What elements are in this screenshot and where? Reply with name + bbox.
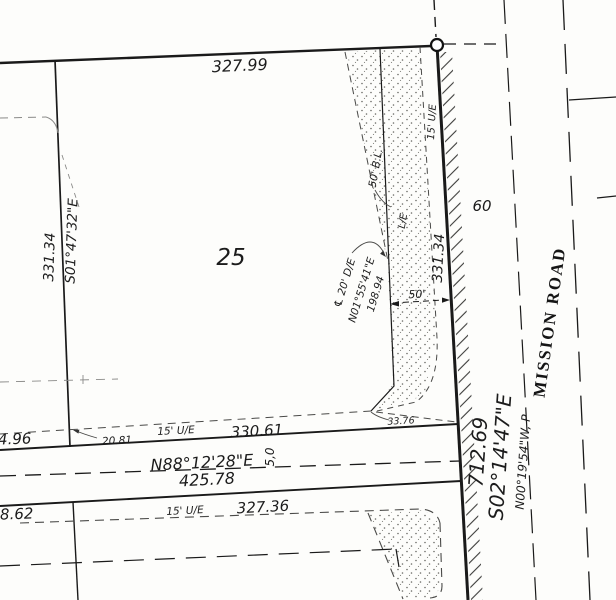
- corner-monument-marker: [431, 39, 443, 51]
- dim-50-label: 50': [408, 288, 425, 302]
- plat-sheet: 327.99 25 331.34 S01°47'32"E 331.34 15' …: [0, 0, 616, 600]
- road-width-label: 60: [472, 197, 491, 215]
- drainage-label-leader: [352, 242, 384, 253]
- boundary-bearing-label: S02°14'47"E: [484, 393, 517, 521]
- lower-lot-division-line: [73, 502, 78, 600]
- offset-leader-arrow: [73, 430, 79, 434]
- boundary-hatch-strip: [440, 52, 483, 600]
- street-half-width-label: 5,0: [263, 447, 277, 466]
- west-corner-arc: [46, 117, 58, 133]
- drainage-easement-stipple-area: [347, 48, 436, 410]
- drainage-leader-arrow: [380, 250, 386, 257]
- offset-dim-label: 20.81: [102, 434, 133, 448]
- utility-easement-top-label: 15' U/E: [426, 103, 439, 140]
- southeast-easement-stipple-area: [369, 510, 442, 598]
- dim-50-arrow-right: [442, 298, 450, 303]
- east-property-tick-2: [597, 196, 616, 198]
- lot-number-label: 25: [216, 245, 245, 271]
- lower-dashed-line: [0, 549, 396, 566]
- wedge-dim-label: 33.76: [387, 415, 415, 427]
- boundary-extension-dashed: [434, 0, 436, 37]
- south-remainder-label: 8.62: [0, 504, 34, 523]
- utility-easement-south-label: 15' U/E: [166, 504, 204, 518]
- lot-west-distance-label: 331.34: [41, 232, 59, 282]
- lot-east-distance-label: 331.34: [430, 233, 449, 283]
- lot-south-distance-label: 330.61: [230, 421, 283, 442]
- west-adjacent-dashed-line: [0, 117, 46, 118]
- lot-west-bearing-label: S01°47'32"E: [63, 198, 82, 284]
- road-east-line: [563, 0, 590, 600]
- road-name-label: MISSION ROAD: [530, 245, 570, 398]
- east-property-tick-1: [569, 97, 616, 100]
- street-distance-label: 425.78: [179, 469, 236, 491]
- utility-easement-street-label: 15' U/E: [157, 424, 195, 438]
- lot-north-distance-label: 327.99: [211, 55, 268, 76]
- street-south-distance-label: 327.36: [236, 497, 289, 518]
- west-remainder-label: 4.96: [0, 429, 32, 448]
- plat-survey-drawing: 327.99 25 331.34 S01°47'32"E 331.34 15' …: [0, 0, 616, 600]
- west-faint-dashed-line: [0, 379, 118, 382]
